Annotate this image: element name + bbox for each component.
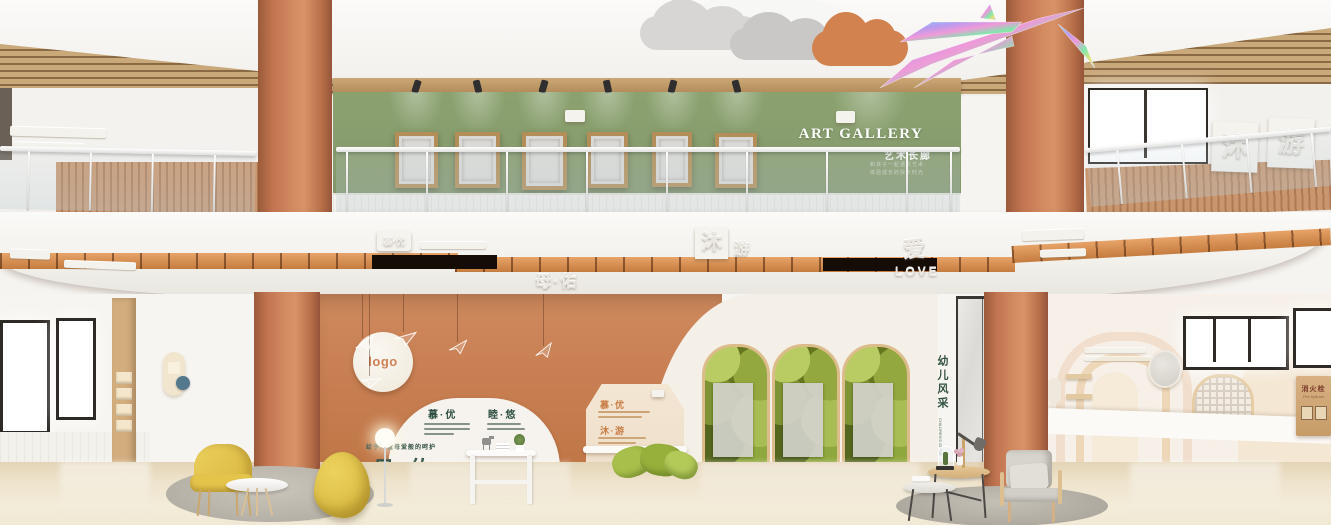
house-fine-print-line xyxy=(598,411,650,413)
armchair-right-arm-rail xyxy=(1058,470,1062,504)
display-board xyxy=(783,383,823,457)
flower-vase xyxy=(957,456,963,465)
console-table-shelf xyxy=(475,480,527,484)
arch-fine-print-line xyxy=(487,428,525,430)
fascia-small-sign-text: 慕·优 xyxy=(384,237,405,247)
strip-dark-segment-1 xyxy=(372,255,497,269)
railing-post xyxy=(950,152,952,212)
pillar-cubby-1 xyxy=(116,372,132,384)
fascia-emboss-left-1 xyxy=(10,249,50,259)
fire-hydrant-label-cn: 消火栓 xyxy=(1296,384,1331,394)
glass-panel-center xyxy=(336,152,960,212)
plaque-inner-card xyxy=(168,362,180,374)
leaf-arch-niche-3 xyxy=(842,344,910,470)
fascia-emboss-tagline xyxy=(420,242,486,249)
pillar-cubby-4 xyxy=(116,420,132,432)
floor-reflection xyxy=(700,462,920,506)
fascia-mu-char: 沐 xyxy=(702,232,722,254)
armchair-right-pillow xyxy=(1009,463,1049,492)
armchair-right-arm-rail xyxy=(1000,472,1004,506)
console-table-leg-right xyxy=(527,456,532,504)
deer-figurine-legs xyxy=(483,445,484,450)
hanging-string-2 xyxy=(403,294,404,332)
railing-post xyxy=(906,152,908,212)
fascia-small-sign-plate: 慕·优 xyxy=(377,231,411,251)
right-corner-window xyxy=(1293,308,1331,368)
railing-post xyxy=(506,152,508,212)
flowers xyxy=(954,449,959,454)
small-oval-decor xyxy=(1047,378,1061,404)
hanging-string-1 xyxy=(362,294,363,338)
display-board xyxy=(853,383,893,457)
arch-label-left: 慕·优 xyxy=(428,406,457,421)
deer-figurine xyxy=(482,438,491,445)
railing-post xyxy=(586,152,588,212)
gallery-wall-plate-2 xyxy=(836,111,855,123)
plant-pot xyxy=(516,445,524,452)
side-table-left xyxy=(226,478,288,516)
paper-plane-ornament-2 xyxy=(393,329,417,348)
fascia-you-char: 游 xyxy=(734,238,749,259)
spotlight-glow-6 xyxy=(707,92,767,138)
lobby-scene: 沐 游 ART GALLERY 艺术长廊 和孩子一起遇见艺术 体验成长的快乐时光 xyxy=(0,0,1331,525)
arch-fine-print-line xyxy=(424,433,454,435)
fascia-love-text: LOVE xyxy=(895,265,940,279)
fire-hydrant-icon xyxy=(1315,406,1327,420)
railing-post xyxy=(346,152,348,212)
floor-lamp-globe xyxy=(375,428,395,448)
bell-jar-base xyxy=(936,466,954,470)
pillar-cubby-3 xyxy=(116,404,132,416)
armchair-right xyxy=(1000,448,1064,522)
balustrade-left xyxy=(0,146,256,217)
house-fine-print-line xyxy=(598,442,636,444)
armchair-left-leg xyxy=(208,490,211,516)
children-style-label-cn: 幼儿风采 xyxy=(934,355,950,411)
fire-hydrant-label-en: Fire hydrant xyxy=(1296,394,1331,399)
hanging-string-5 xyxy=(543,294,544,346)
gallery-wall-plate-1 xyxy=(565,110,585,122)
house-label-bottom: 沐·游 xyxy=(600,424,626,437)
lower-left-window-1 xyxy=(0,320,50,434)
hanging-string-3 xyxy=(457,294,458,342)
railing-post xyxy=(746,152,748,212)
armchair-right-seat xyxy=(1002,488,1060,502)
side-table-left-leg xyxy=(241,488,250,516)
bell-jar-plant xyxy=(943,452,948,465)
house-fine-print-line xyxy=(598,437,646,439)
leaf-arch-niche-1 xyxy=(702,344,770,470)
fire-hydrant-sign: 消火栓 Fire hydrant xyxy=(1296,376,1331,436)
house-fine-print-line xyxy=(598,416,642,418)
armchair-right-leg xyxy=(1052,502,1055,522)
pillar-cubby-2 xyxy=(116,388,132,400)
fascia-brand-text: 母·佑 xyxy=(535,268,578,292)
balustrade-center xyxy=(336,147,960,213)
fascia-mu-plate: 沐 xyxy=(695,228,728,259)
logo-text: logo xyxy=(368,354,397,369)
floor-reflection xyxy=(60,462,150,512)
nesting-table-front xyxy=(904,482,956,522)
floor-reflection xyxy=(410,462,570,508)
floor-lamp-pole xyxy=(384,447,386,505)
nesting-table-front-leg xyxy=(946,489,952,521)
armchair-right-leg xyxy=(1008,502,1011,522)
folded-towels xyxy=(912,476,930,483)
armchair-left-leg xyxy=(197,490,202,516)
nesting-table-front-leg xyxy=(908,489,914,521)
right-window-mullion-2 xyxy=(1248,318,1251,362)
side-table-left-leg xyxy=(256,488,258,516)
arch-fine-print-line xyxy=(424,423,470,425)
paper-plane-ornament-3 xyxy=(447,339,468,356)
railing-post xyxy=(826,152,828,212)
side-table-left-leg xyxy=(265,488,274,516)
floor-lamp-base xyxy=(377,503,393,507)
wall-shelf-1 xyxy=(1066,374,1092,379)
right-window-mullion-1 xyxy=(1213,318,1216,362)
arch-label-right: 睦·悠 xyxy=(488,406,517,421)
porthole-mirror xyxy=(1148,350,1182,388)
arch-fine-print-line xyxy=(424,428,470,430)
right-wall-caption-line-1 xyxy=(1084,348,1146,353)
arch-fine-print-line xyxy=(487,423,521,425)
fire-hydrant-icon xyxy=(1301,406,1313,420)
lower-left-window-2 xyxy=(56,318,96,420)
blue-badge xyxy=(176,376,190,390)
wall-shelf-2 xyxy=(1066,394,1092,399)
house-label-top: 慕·优 xyxy=(600,398,626,411)
floor-reflection xyxy=(1130,462,1280,512)
right-upper-window-strip xyxy=(1183,316,1289,370)
nesting-table-back-leg xyxy=(981,474,986,518)
holographic-airplane-sculpture xyxy=(862,2,1097,94)
book-stack xyxy=(496,443,509,451)
fascia-ai-char: 爱 xyxy=(902,231,926,264)
house-panel-plate xyxy=(652,390,664,397)
art-gallery-title: ART GALLERY xyxy=(790,126,932,143)
railing-post xyxy=(426,152,428,212)
display-board xyxy=(713,383,753,457)
leaf-arch-niche-2 xyxy=(772,344,840,470)
railing-post xyxy=(666,152,668,212)
glass-panel-left xyxy=(0,151,256,214)
